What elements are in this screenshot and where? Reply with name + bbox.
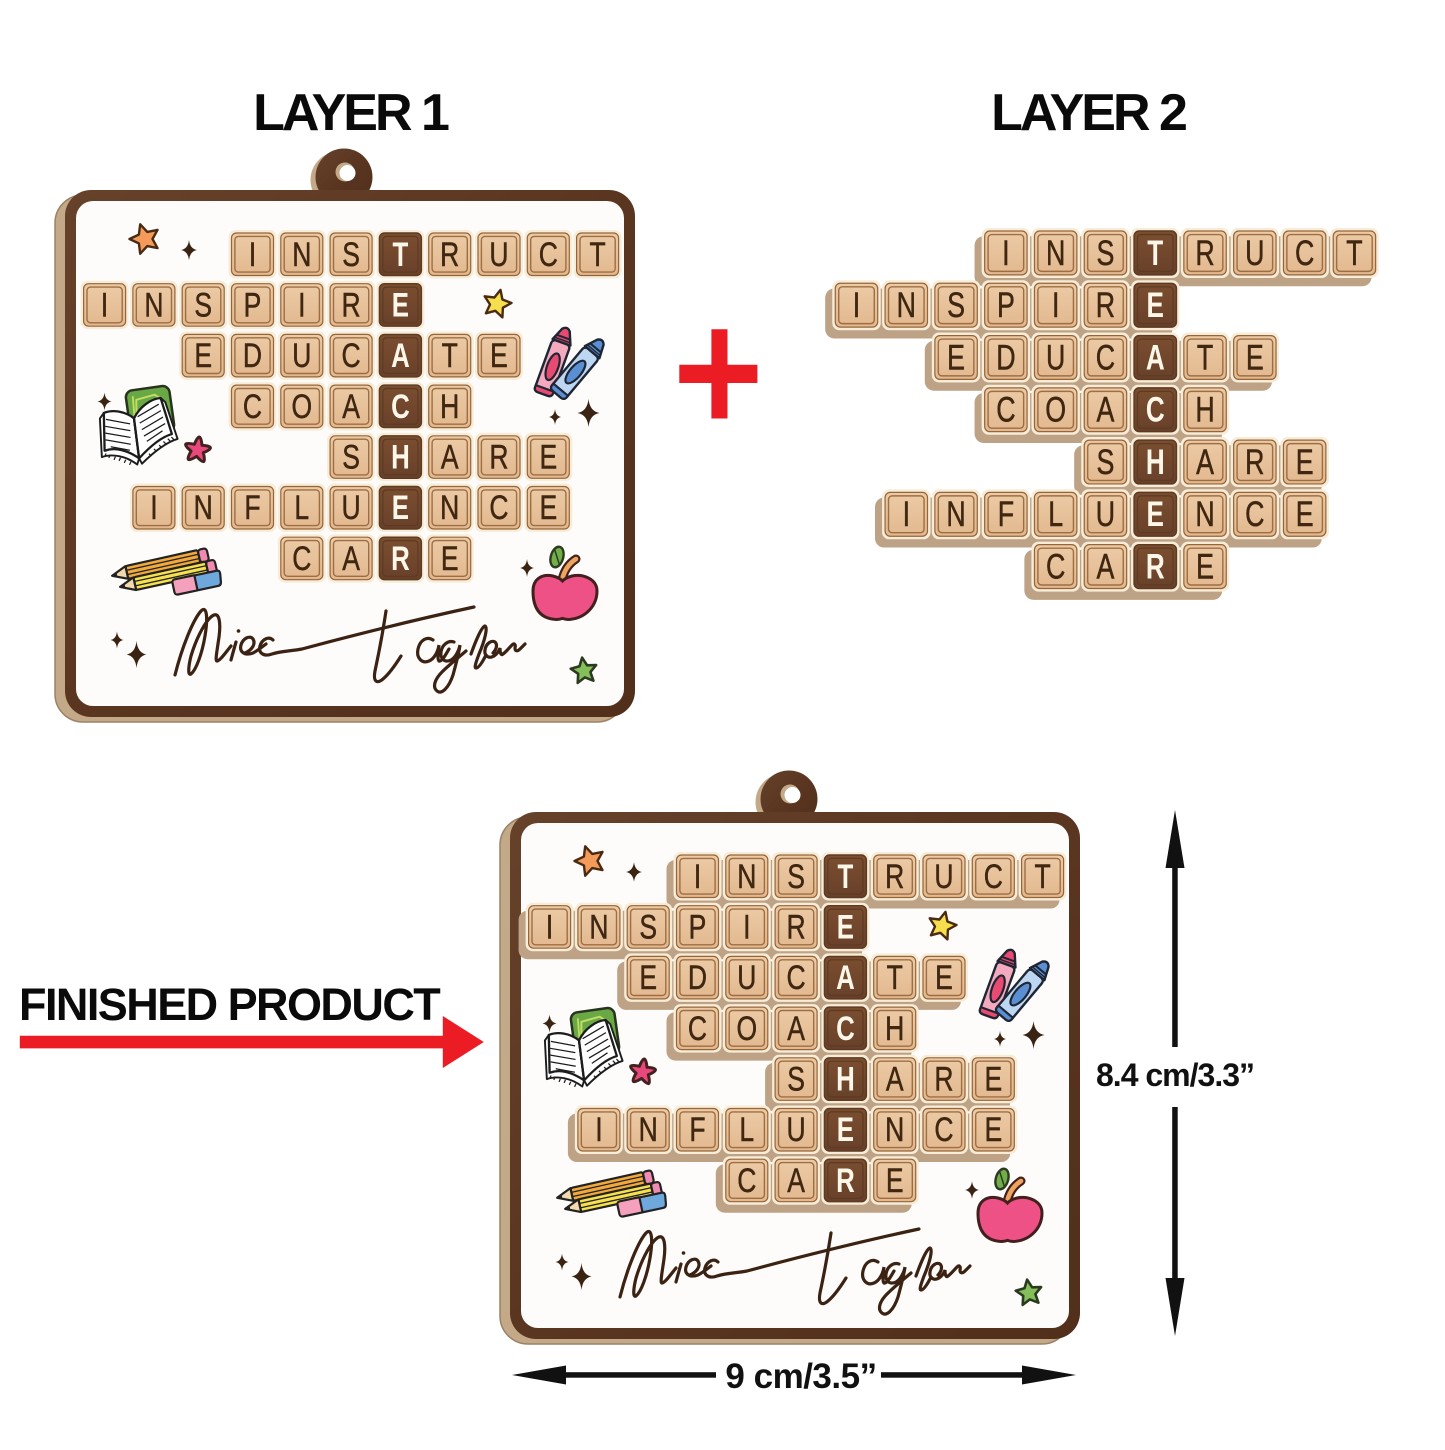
svg-text:I: I	[249, 236, 256, 274]
svg-text:C: C	[1096, 338, 1115, 377]
svg-text:N: N	[946, 495, 965, 534]
svg-text:T: T	[887, 959, 903, 997]
svg-text:N: N	[639, 1111, 658, 1149]
svg-text:S: S	[1097, 442, 1115, 481]
svg-text:C: C	[836, 1011, 855, 1048]
svg-text:I: I	[595, 1111, 602, 1149]
svg-text:N: N	[885, 1111, 904, 1149]
svg-text:R: R	[1096, 286, 1115, 325]
svg-text:R: R	[1195, 233, 1214, 272]
svg-text:S: S	[947, 286, 965, 325]
svg-text:C: C	[934, 1111, 953, 1149]
svg-text:D: D	[996, 338, 1015, 377]
svg-text:C: C	[737, 1162, 756, 1200]
svg-text:N: N	[897, 286, 916, 325]
svg-text:A: A	[1097, 547, 1115, 586]
svg-text:N: N	[144, 286, 163, 324]
svg-text:R: R	[489, 438, 508, 476]
svg-text:S: S	[342, 236, 360, 274]
svg-text:U: U	[1096, 495, 1115, 534]
svg-text:R: R	[391, 541, 410, 578]
svg-text:A: A	[391, 338, 410, 375]
svg-text:E: E	[935, 959, 953, 997]
svg-text:E: E	[886, 1162, 904, 1200]
svg-text:E: E	[490, 337, 508, 375]
svg-text:L: L	[1048, 495, 1063, 534]
svg-text:C: C	[391, 389, 410, 426]
svg-text:O: O	[1045, 390, 1066, 429]
svg-text:N: N	[1195, 495, 1214, 534]
svg-text:LAYER 2: LAYER 2	[991, 84, 1186, 142]
svg-text:E: E	[984, 1060, 1002, 1098]
svg-text:R: R	[440, 236, 459, 274]
svg-text:I: I	[853, 286, 860, 325]
svg-text:E: E	[1296, 442, 1314, 481]
svg-text:A: A	[1097, 390, 1115, 429]
svg-text:C: C	[292, 540, 311, 578]
svg-text:I: I	[903, 495, 910, 534]
svg-text:O: O	[291, 388, 312, 426]
svg-text:E: E	[1296, 495, 1314, 534]
svg-text:I: I	[298, 286, 305, 324]
svg-text:E: E	[837, 1112, 854, 1149]
svg-text:S: S	[639, 908, 657, 946]
svg-text:R: R	[787, 908, 806, 946]
svg-text:C: C	[1245, 495, 1264, 534]
svg-text:C: C	[996, 390, 1015, 429]
svg-text:LAYER 1: LAYER 1	[253, 84, 449, 142]
svg-text:T: T	[1197, 338, 1213, 377]
svg-text:E: E	[1147, 285, 1164, 325]
svg-text:9 cm/3.5”: 9 cm/3.5”	[725, 1357, 876, 1396]
svg-text:R: R	[342, 286, 361, 324]
svg-text:A: A	[886, 1060, 904, 1098]
svg-text:A: A	[342, 540, 360, 578]
svg-text:I: I	[101, 286, 108, 324]
svg-text:C: C	[342, 337, 361, 375]
svg-text:E: E	[837, 909, 854, 946]
svg-text:E: E	[984, 1111, 1002, 1149]
svg-text:A: A	[441, 438, 459, 476]
svg-text:U: U	[1245, 233, 1264, 272]
svg-text:H: H	[1146, 442, 1165, 482]
svg-text:U: U	[292, 337, 311, 375]
svg-text:T: T	[1346, 233, 1362, 272]
svg-text:F: F	[998, 495, 1014, 534]
svg-text:A: A	[1196, 442, 1214, 481]
svg-text:E: E	[639, 959, 657, 997]
svg-text:E: E	[392, 287, 409, 324]
svg-text:E: E	[392, 490, 409, 527]
svg-text:P: P	[244, 286, 262, 324]
svg-text:E: E	[194, 337, 212, 375]
svg-text:H: H	[1195, 390, 1214, 429]
svg-text:C: C	[243, 388, 262, 426]
svg-text:N: N	[737, 858, 756, 896]
svg-text:E: E	[1246, 338, 1264, 377]
svg-text:N: N	[440, 489, 459, 527]
svg-text:H: H	[836, 1061, 855, 1098]
svg-text:F: F	[244, 489, 260, 527]
svg-text:D: D	[688, 959, 707, 997]
svg-text:C: C	[984, 858, 1003, 896]
svg-text:C: C	[1146, 390, 1165, 430]
svg-text:C: C	[1295, 233, 1314, 272]
svg-text:E: E	[1147, 494, 1164, 534]
svg-text:I: I	[694, 858, 701, 896]
svg-text:U: U	[934, 858, 953, 896]
svg-text:I: I	[1052, 286, 1059, 325]
svg-text:R: R	[934, 1060, 953, 1098]
svg-text:N: N	[194, 489, 213, 527]
svg-text:F: F	[689, 1111, 705, 1149]
svg-text:C: C	[1046, 547, 1065, 586]
svg-text:S: S	[194, 286, 212, 324]
svg-text:I: I	[743, 908, 750, 946]
svg-text:P: P	[997, 286, 1015, 325]
svg-text:A: A	[787, 1162, 805, 1200]
svg-text:U: U	[787, 1111, 806, 1149]
svg-text:D: D	[243, 337, 262, 375]
svg-text:A: A	[836, 960, 855, 997]
svg-text:P: P	[689, 908, 707, 946]
svg-text:O: O	[736, 1010, 757, 1048]
svg-text:T: T	[393, 237, 409, 274]
svg-text:E: E	[539, 438, 557, 476]
svg-text:A: A	[342, 388, 360, 426]
svg-text:I: I	[1002, 233, 1009, 272]
svg-text:S: S	[342, 438, 360, 476]
svg-text:C: C	[489, 489, 508, 527]
svg-text:N: N	[292, 236, 311, 274]
svg-text:H: H	[440, 388, 459, 426]
svg-text:A: A	[787, 1010, 805, 1048]
svg-text:H: H	[391, 439, 410, 476]
svg-text:A: A	[1146, 338, 1165, 378]
svg-text:C: C	[539, 236, 558, 274]
svg-text:C: C	[688, 1010, 707, 1048]
svg-text:I: I	[546, 908, 553, 946]
svg-text:U: U	[342, 489, 361, 527]
svg-text:S: S	[1097, 233, 1115, 272]
svg-text:L: L	[739, 1111, 754, 1149]
svg-text:R: R	[885, 858, 904, 896]
svg-text:T: T	[838, 859, 854, 896]
svg-text:N: N	[1046, 233, 1065, 272]
svg-text:N: N	[589, 908, 608, 946]
svg-text:8.4 cm/3.3”: 8.4 cm/3.3”	[1096, 1057, 1254, 1093]
svg-text:FINISHED PRODUCT: FINISHED PRODUCT	[19, 979, 440, 1030]
svg-text:E: E	[539, 489, 557, 527]
svg-text:R: R	[1146, 547, 1165, 587]
svg-text:S: S	[787, 858, 805, 896]
svg-text:C: C	[787, 959, 806, 997]
svg-text:T: T	[442, 337, 458, 375]
svg-text:T: T	[1147, 233, 1163, 273]
svg-text:R: R	[836, 1163, 855, 1200]
svg-text:U: U	[489, 236, 508, 274]
svg-text:U: U	[737, 959, 756, 997]
svg-text:E: E	[1196, 547, 1214, 586]
svg-text:E: E	[441, 540, 459, 578]
svg-text:E: E	[947, 338, 965, 377]
svg-text:U: U	[1046, 338, 1065, 377]
svg-text:S: S	[787, 1060, 805, 1098]
svg-text:T: T	[590, 236, 606, 274]
svg-text:R: R	[1245, 442, 1264, 481]
svg-text:T: T	[1035, 858, 1051, 896]
svg-text:I: I	[150, 489, 157, 527]
svg-text:L: L	[294, 489, 309, 527]
svg-text:H: H	[885, 1010, 904, 1048]
